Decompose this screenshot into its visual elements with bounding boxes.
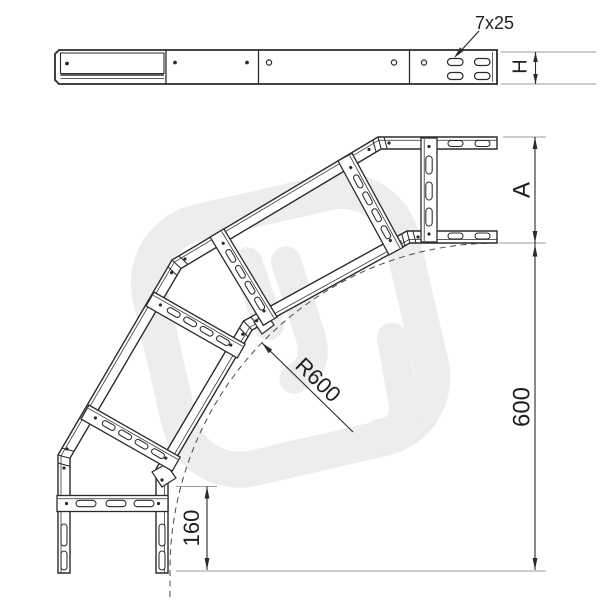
width-label: A [508, 182, 535, 198]
top-view-body [55, 50, 497, 84]
radius-arc [170, 243, 501, 597]
slot-size-label: 7x25 [475, 13, 514, 33]
rung-end-top [421, 138, 437, 242]
dimension-600: 600 [176, 243, 546, 571]
rail-slots-bottom-end [61, 524, 165, 570]
overall-length-label: 600 [508, 387, 535, 427]
arrow-up-icon [533, 137, 538, 149]
drawing-root: 7x25 H [0, 0, 600, 600]
arrow-down-icon [533, 558, 538, 570]
height-label: H [509, 59, 531, 73]
dimension-160: 160 [176, 487, 217, 571]
arrow-down-icon [533, 74, 538, 84]
arrow-up-icon [205, 487, 210, 499]
dimension-R600: R600 [262, 343, 353, 432]
arrow-down-icon [533, 231, 538, 243]
technical-drawing: 7x25 H [0, 0, 600, 600]
arrow-up-icon [533, 52, 538, 62]
rail-slots-top-end [448, 141, 490, 240]
dimension-H: H [501, 52, 596, 84]
arrow-up-icon [533, 245, 538, 257]
dimension-A: A [499, 137, 546, 243]
arrow-down-icon [205, 558, 210, 570]
rung-end-bottom [57, 496, 168, 512]
top-view: 7x25 H [55, 13, 596, 84]
end-tangent-label: 160 [179, 510, 204, 547]
